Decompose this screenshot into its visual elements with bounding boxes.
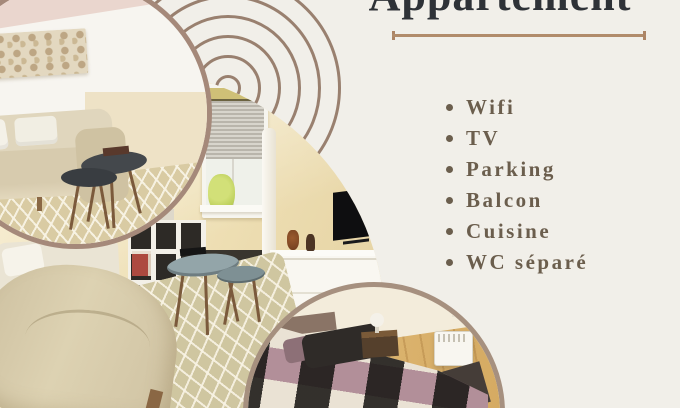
feature-label: Balcon — [466, 188, 543, 213]
feature-item: WC séparé — [446, 247, 588, 278]
pebble-wall-art — [0, 28, 88, 79]
sofa-leg — [37, 197, 42, 211]
shutter-box — [206, 88, 264, 101]
feature-item: Balcon — [446, 185, 588, 216]
wall-socket — [452, 310, 457, 317]
amenities-list: Wifi TV Parking Balcon Cuisine WC séparé — [446, 92, 588, 278]
window-blinds — [206, 101, 264, 159]
figurine — [306, 234, 315, 251]
sofa-pillow — [14, 116, 58, 147]
bullet-icon — [446, 166, 453, 173]
feature-label: Cuisine — [466, 219, 551, 244]
bullet-icon — [446, 135, 453, 142]
bullet-icon — [446, 197, 453, 204]
title-divider — [392, 31, 646, 40]
amber-vase — [287, 230, 299, 250]
feature-item: Wifi — [446, 92, 588, 123]
bedside-lamp — [370, 313, 384, 327]
feature-label: Wifi — [466, 95, 515, 120]
tv-screen — [333, 187, 377, 240]
divider-cap — [643, 31, 646, 40]
page-title: Appartement — [350, 0, 650, 21]
feature-label: WC séparé — [466, 250, 588, 275]
photo-living-room-sofa — [0, 0, 212, 249]
nightstand — [361, 330, 399, 358]
bullet-icon — [446, 104, 453, 111]
feature-item: TV — [446, 123, 588, 154]
radiator-grille — [438, 334, 467, 342]
feature-label: TV — [466, 126, 500, 151]
feature-item: Cuisine — [446, 216, 588, 247]
floor-lamp — [262, 128, 276, 258]
flyer-canvas: Appartement Wifi TV Parking Balcon Cuisi… — [0, 0, 680, 408]
photo-bedroom — [243, 282, 505, 408]
console-seam — [270, 258, 385, 260]
bullet-icon — [446, 259, 453, 266]
feature-label: Parking — [466, 157, 556, 182]
feature-item: Parking — [446, 154, 588, 185]
divider-line — [392, 34, 646, 37]
coffee-table-small — [61, 168, 117, 187]
shelf-poster — [132, 251, 151, 276]
bullet-icon — [446, 228, 453, 235]
window-sill — [200, 205, 270, 212]
